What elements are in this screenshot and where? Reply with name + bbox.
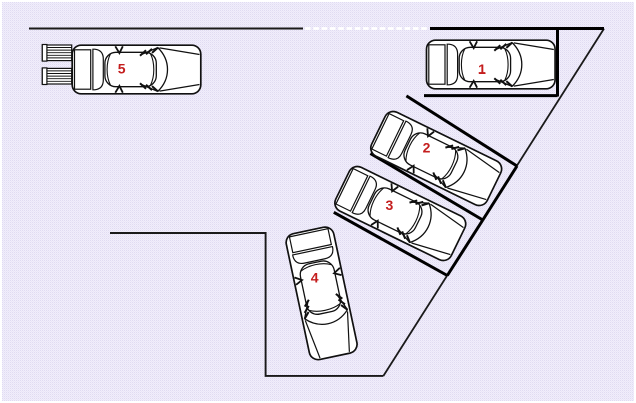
svg-text:5: 5 xyxy=(118,61,126,77)
svg-text:2: 2 xyxy=(423,140,431,156)
svg-text:1: 1 xyxy=(478,61,486,77)
svg-text:3: 3 xyxy=(386,197,394,213)
svg-text:4: 4 xyxy=(311,270,319,286)
